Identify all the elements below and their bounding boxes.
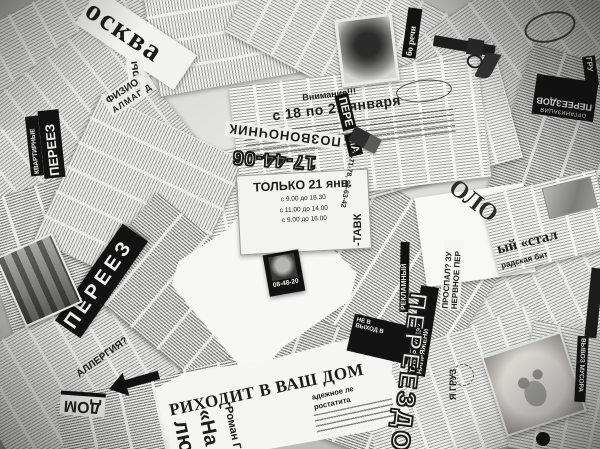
article-roman-vertical: Роман Г: [222, 405, 245, 449]
strip-vyvoz-musora-label: ВЫВОЗ МУСОРА: [577, 338, 587, 392]
ad-pereez-label: ПЕРЕЕЗ: [42, 123, 62, 176]
fragment-tavk: -ТАВК: [352, 206, 364, 246]
pet-ad-box: 08-48-20: [263, 249, 306, 297]
headline-dom-label: ДОМ: [63, 397, 101, 417]
animal-photo: [268, 253, 298, 281]
article-photo-thumb: [542, 176, 598, 219]
portrait-photo: [334, 13, 400, 88]
tile-gru-label: ГРУ: [584, 57, 595, 73]
newspaper-collage-photo: осква кв-ры ФИЗИО АЛМАГ Д КВАРТИРНЫЕ ПЕР…: [0, 0, 600, 449]
headline-dom-upside-down: ДОМ: [59, 390, 106, 417]
fragment-tavk-label: -ТАВК: [352, 214, 364, 246]
strip-bo-rechi-label: бо речи: [404, 25, 418, 56]
black-dot: [536, 432, 550, 446]
tile-gru: ГРУ: [582, 55, 599, 87]
